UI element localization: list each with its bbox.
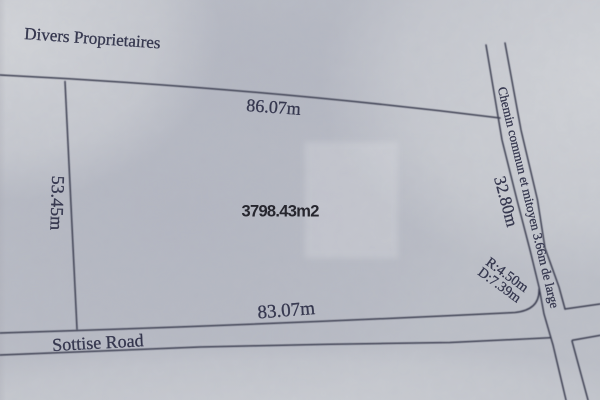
svg-text:86.07m: 86.07m [246, 95, 302, 119]
svg-text:53.45m: 53.45m [46, 175, 68, 230]
svg-text:3798.43m2: 3798.43m2 [242, 202, 320, 220]
